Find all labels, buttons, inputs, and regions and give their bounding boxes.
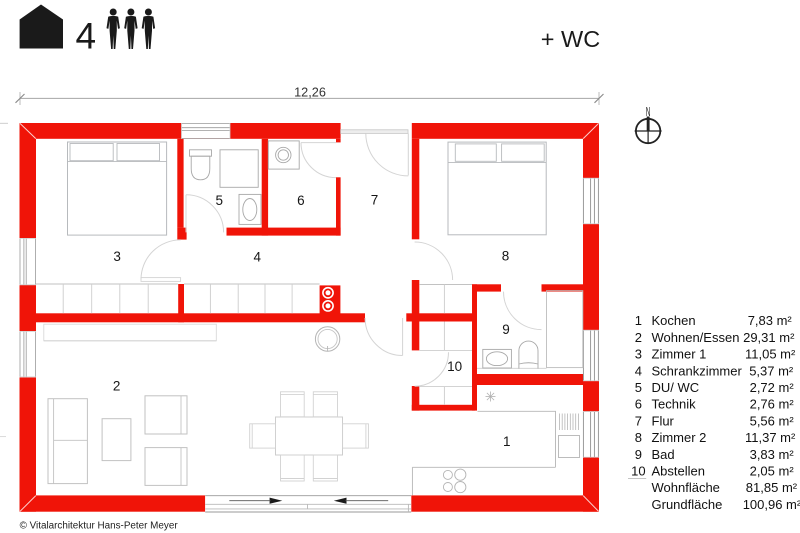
svg-text:Zimmer 2: Zimmer 2 [652,430,707,445]
svg-text:81,85 m²: 81,85 m² [746,480,798,495]
svg-text:3,83 m²: 3,83 m² [750,447,795,462]
svg-text:12,26: 12,26 [294,85,326,99]
svg-text:29,31 m²: 29,31 m² [743,330,795,345]
svg-text:1: 1 [635,313,642,328]
svg-text:Technik: Technik [652,397,697,412]
svg-text:7,83 m²: 7,83 m² [748,313,793,328]
svg-text:Flur: Flur [652,413,675,428]
svg-text:11,37 m²: 11,37 m² [745,430,796,445]
svg-text:© Vitalarchitektur Hans-Peter: © Vitalarchitektur Hans-Peter Meyer [20,521,179,532]
svg-text:3: 3 [635,347,642,362]
svg-text:4: 4 [635,363,642,378]
svg-text:7: 7 [635,413,642,428]
svg-text:2,76 m²: 2,76 m² [750,397,795,412]
svg-text:Bad: Bad [652,447,675,462]
svg-text:2,72 m²: 2,72 m² [750,380,795,395]
svg-text:2,05 m²: 2,05 m² [750,464,795,479]
svg-text:8: 8 [635,430,642,445]
svg-text:8: 8 [502,249,510,264]
svg-text:5: 5 [635,380,642,395]
svg-text:Schrankzimmer: Schrankzimmer [652,363,743,378]
svg-text:5,56 m²: 5,56 m² [750,413,795,428]
svg-text:5: 5 [216,193,224,208]
svg-text:Grundfläche: Grundfläche [652,497,723,512]
svg-text:Wohnfläche: Wohnfläche [652,480,720,495]
svg-text:2: 2 [635,330,642,345]
svg-text:9: 9 [635,447,642,462]
svg-text:Wohnen/Essen: Wohnen/Essen [652,330,740,345]
svg-text:2: 2 [113,378,121,393]
svg-text:1: 1 [503,434,511,449]
svg-text:N: N [646,106,651,120]
svg-text:11,05 m²: 11,05 m² [745,347,796,362]
svg-text:4: 4 [76,15,97,56]
svg-text:DU/ WC: DU/ WC [652,380,700,395]
svg-text:5,37 m²: 5,37 m² [749,363,794,378]
svg-text:6: 6 [297,193,305,208]
svg-text:Kochen: Kochen [652,313,696,328]
svg-text:6: 6 [635,397,642,412]
svg-text:Abstellen: Abstellen [652,464,705,479]
svg-text:3: 3 [113,249,121,264]
svg-text:+ WC: + WC [541,26,600,52]
svg-text:Zimmer 1: Zimmer 1 [652,347,707,362]
svg-text:9: 9 [502,322,510,337]
svg-text:10: 10 [631,464,645,479]
svg-text:7: 7 [371,193,379,208]
svg-text:4: 4 [254,250,262,265]
svg-text:10: 10 [447,359,462,374]
svg-text:100,96 m²: 100,96 m² [743,497,800,512]
